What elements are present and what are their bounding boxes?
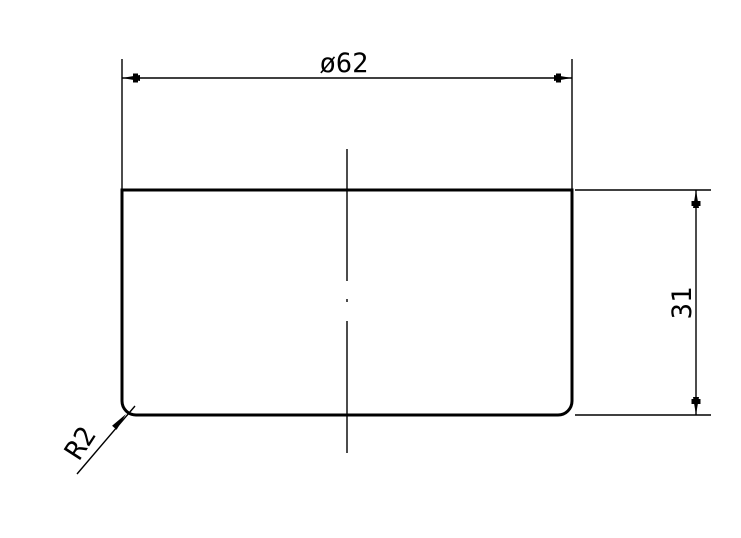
leader-arrowhead-icon [112, 414, 126, 430]
dimension-height: 31 [575, 190, 711, 415]
arrowhead-up-tail [692, 201, 701, 206]
arrowhead-right-tail [556, 74, 561, 83]
dimension-fillet-radius: R2 [59, 406, 135, 474]
drawing-canvas: ø62 31 R2 [0, 0, 741, 538]
fillet-radius-label: R2 [59, 421, 103, 465]
technical-drawing: ø62 31 R2 [0, 0, 741, 538]
arrowhead-down-tail [692, 399, 701, 404]
height-label: 31 [667, 287, 698, 320]
arrowhead-left-tail [133, 74, 138, 83]
diameter-label: ø62 [320, 48, 369, 79]
